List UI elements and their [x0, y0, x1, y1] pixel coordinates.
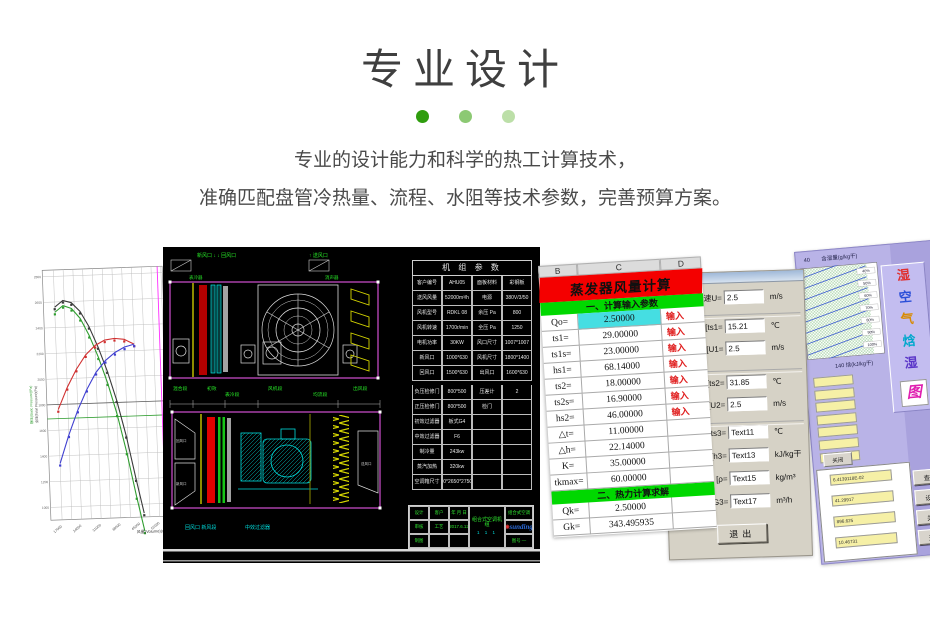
- param-value: 800*500: [442, 400, 472, 415]
- section-divider-dots: [0, 108, 930, 126]
- psy-input[interactable]: [815, 399, 856, 412]
- param-label: 检门: [472, 400, 502, 415]
- param-value: 380V/3/50: [502, 291, 532, 306]
- param-value: 1800*1400: [502, 351, 532, 366]
- svg-text:70%: 70%: [865, 306, 874, 311]
- field-input[interactable]: Text15: [729, 470, 769, 485]
- seg-label-2: 初效: [207, 385, 217, 392]
- description-line-2: 准确匹配盘管冷热量、流程、水阻等技术参数，完善预算方案。: [199, 188, 731, 209]
- field-input[interactable]: Text11: [728, 424, 768, 439]
- param-value: 30KW: [442, 336, 472, 351]
- seg-label-4: 风机段: [268, 385, 283, 392]
- svg-text:50%: 50%: [863, 281, 872, 286]
- cell-note: [670, 466, 714, 485]
- param-label: 送风风量: [412, 291, 442, 306]
- param-label: 客户编号: [412, 276, 442, 291]
- field-unit: m/s: [770, 291, 783, 300]
- unit-parameters-table: 机 组 参 数 客户编号 AHU05 面板材料 彩钢板 送风风量 52000m³…: [412, 260, 532, 490]
- field-unit: m/s: [773, 398, 786, 407]
- cad-bottom-label-1: 回风口 新风段: [185, 524, 216, 531]
- unit-parameters-title: 机 组 参 数: [412, 260, 532, 276]
- param-value: 2: [502, 385, 532, 400]
- company-logo: ◉sunding: [505, 520, 533, 534]
- param-value: 彩钢板: [502, 276, 532, 291]
- table-row: 负压检修门 800*500 压差计 2: [412, 385, 532, 400]
- exit-button[interactable]: 退出: [918, 527, 930, 545]
- svg-text:24000: 24000: [72, 524, 82, 533]
- param-value: 1500*630: [442, 366, 472, 381]
- param-label: 面板材料: [472, 276, 502, 291]
- svg-text:2800: 2800: [34, 275, 41, 279]
- svg-text:40%: 40%: [862, 269, 871, 274]
- title-block-row: 制图: [409, 534, 469, 548]
- field-input[interactable]: Text17: [730, 493, 770, 508]
- svg-text:2200: 2200: [36, 352, 43, 356]
- query-button[interactable]: 查询: [912, 467, 930, 485]
- param-label: 初效过滤器: [412, 415, 442, 430]
- table-row: 正压检修门 800*500 检门: [412, 400, 532, 415]
- psy-result-field: 41.29917: [831, 490, 894, 506]
- about-button[interactable]: 关于: [916, 507, 930, 525]
- svg-text:90%: 90%: [867, 330, 876, 335]
- field-input[interactable]: 2.5: [724, 289, 764, 304]
- psy-input[interactable]: [819, 437, 860, 450]
- psy-input[interactable]: [817, 425, 858, 438]
- table-row: 中效过滤器 F6: [412, 430, 532, 445]
- param-value: 1250: [502, 321, 532, 336]
- psy-input[interactable]: [816, 412, 857, 425]
- psychrometric-tool-window: 40 含湿量(g/kg干) 40%50%60%70%80%90%100% 140…: [794, 240, 930, 565]
- param-label: [472, 415, 502, 430]
- side-label-supply: 送风口: [361, 461, 372, 466]
- param-value: 板式G4: [442, 415, 472, 430]
- exit-button[interactable]: 退出: [717, 523, 768, 544]
- param-label: 蒸汽加热: [412, 460, 442, 475]
- svg-text:60%: 60%: [864, 293, 873, 298]
- param-value: F6: [442, 430, 472, 445]
- psy-vertical-title: 湿空气焓湿 图: [881, 262, 930, 413]
- param-label: 回风口: [412, 366, 442, 381]
- title-block-name: 组合式空调机组 1 1 1: [469, 506, 505, 548]
- param-value: RDKL 08: [442, 306, 472, 321]
- psy-bottom-axis-label: 140 焓(kJ/kg干): [835, 359, 874, 370]
- field-input[interactable]: 2.5: [727, 396, 767, 411]
- side-label-return: 回风口: [176, 439, 187, 443]
- param-label: [472, 475, 502, 490]
- psy-result-field: 10.46731: [835, 532, 898, 548]
- cad-top-left-label: 新风口 ↓ ↓ 回风口: [197, 252, 236, 259]
- psy-title-chars: 湿空气焓湿: [882, 263, 930, 376]
- table-row: 风机转速 1700r/min 全压 Pa 1250: [412, 321, 532, 336]
- param-value: 6500*2650*2750(H): [442, 475, 472, 490]
- table-row: 制冷量 243kw: [412, 445, 532, 460]
- param-label: 电机功率: [412, 336, 442, 351]
- seg-label-3: 表冷段: [225, 391, 240, 398]
- table-row: 风机型号 RDKL 08 余压 Pa 800: [412, 306, 532, 321]
- cell-value[interactable]: 343.495935: [590, 513, 673, 534]
- field-input[interactable]: 15.21: [725, 318, 765, 333]
- field-unit: ℃: [772, 376, 781, 385]
- param-value: [502, 415, 532, 430]
- param-label: 全压 Pa: [472, 321, 502, 336]
- psychrometric-chart: 40%50%60%70%80%90%100%: [799, 262, 885, 360]
- param-value: [502, 445, 532, 460]
- param-label: 风机型号: [412, 306, 442, 321]
- table-row: 蒸汽加热 320kw: [412, 460, 532, 475]
- section-description: 专业的设计能力和科学的热工计算技术， 准确匹配盘管冷热量、流程、水阻等技术参数，…: [0, 142, 930, 218]
- param-label: 中效过滤器: [412, 430, 442, 445]
- psy-result-field: 896.625: [833, 511, 896, 527]
- param-value: 1000*630: [442, 351, 472, 366]
- evaporator-calc-spreadsheet: B C D 蒸发器风量计算 一、计算输入参数 Qo= 2.50000 输入 ts…: [538, 256, 717, 537]
- title-block-company: 组合式空调 ◉sunding 图号 —: [505, 506, 533, 548]
- fan-chart-plot: 1700024000310003800045000520001000120014…: [24, 260, 176, 551]
- svg-text:31000: 31000: [92, 523, 102, 532]
- description-line-1: 专业的设计能力和科学的热工计算技术，: [294, 150, 636, 171]
- table-row: 新风口 1000*630 风机尺寸 1800*1400: [412, 351, 532, 366]
- revision-marks: 1 1 1: [477, 531, 497, 536]
- field-unit: kJ/kg干: [775, 448, 802, 460]
- param-label: 出风口: [472, 366, 502, 381]
- param-label: 风机转速: [412, 321, 442, 336]
- cad-top-right-label: ↑ 送风口: [309, 252, 328, 259]
- svg-text:2000: 2000: [37, 378, 44, 382]
- table-row: 初效过滤器 板式G4: [412, 415, 532, 430]
- param-value: 52000m³/h: [442, 291, 472, 306]
- title-block-grid: 设计 客户 年 月 日 审核 工艺 2017.6.12 制图: [409, 506, 469, 548]
- unit-parameters-rows: 客户编号 AHU05 面板材料 彩钢板 送风风量 52000m³/h 电源 38…: [412, 276, 532, 490]
- seg-label-1: 混合段: [173, 385, 188, 392]
- sheet-input-rows: Qo= 2.50000 输入 ts1= 29.00000 输入 ts1s= 23…: [541, 306, 714, 491]
- psy-results-panel: 6.4139118E-0241.29917896.62510.46731: [816, 462, 918, 563]
- psy-result-field: 6.4139118E-02: [830, 469, 893, 485]
- param-label: 新风口: [412, 351, 442, 366]
- param-label: 负压检修门: [412, 385, 442, 400]
- param-label: 电源: [472, 291, 502, 306]
- side-label-fresh: 新风口: [176, 481, 187, 486]
- param-value: 1600*630: [502, 366, 532, 381]
- cad-silencer-label: 消声器: [325, 274, 339, 281]
- title-block-row: 审核 工艺 2017.6.12: [409, 520, 469, 534]
- param-value: 800: [502, 306, 532, 321]
- field-input[interactable]: Text13: [729, 447, 769, 462]
- settings-button[interactable]: 设置: [914, 487, 930, 505]
- field-unit: ℃: [771, 320, 780, 329]
- cell-label[interactable]: Gk=: [553, 518, 591, 536]
- dot-icon: [416, 110, 429, 123]
- param-label: [472, 430, 502, 445]
- param-value: 1700r/min: [442, 321, 472, 336]
- fan-performance-chart: 1700024000310003800045000520001000120014…: [24, 260, 176, 551]
- param-label: [472, 460, 502, 475]
- param-value: [502, 460, 532, 475]
- field-input[interactable]: 31.85: [726, 374, 766, 389]
- psy-top-axis-label: 40 含湿量(g/kg干): [803, 252, 857, 265]
- psy-logo-glyph-icon: 图: [900, 379, 929, 407]
- cell-note: [673, 511, 717, 530]
- svg-text:38000: 38000: [111, 522, 121, 531]
- param-value: [502, 400, 532, 415]
- field-unit: m³/h: [776, 495, 792, 504]
- psy-input[interactable]: [813, 374, 854, 387]
- svg-text:1000: 1000: [42, 506, 49, 510]
- seg-label-6: 出风段: [353, 385, 368, 392]
- param-value: 320kw: [442, 460, 472, 475]
- svg-text:80%: 80%: [866, 318, 875, 323]
- cad-coil-label: 表冷器: [189, 274, 203, 281]
- param-value: 243kw: [442, 445, 472, 460]
- param-label: 制冷量: [412, 445, 442, 460]
- param-label: 空调箱尺寸: [412, 475, 442, 490]
- field-unit: ℃: [774, 426, 783, 435]
- dot-icon: [502, 110, 515, 123]
- table-row: 客户编号 AHU05 面板材料 彩钢板: [412, 276, 532, 291]
- param-label: 风口尺寸: [472, 336, 502, 351]
- cad-bottom-label-2: 中效过滤器: [245, 524, 270, 531]
- svg-text:1600: 1600: [39, 429, 46, 433]
- param-label: 风机尺寸: [472, 351, 502, 366]
- svg-text:2400: 2400: [36, 326, 43, 330]
- table-row: 电机功率 30KW 风口尺寸 1007*1007: [412, 336, 532, 351]
- param-label: [472, 445, 502, 460]
- svg-text:1200: 1200: [41, 480, 48, 484]
- drawing-title-block: 设计 客户 年 月 日 审核 工艺 2017.6.12 制图 组合式空调机组: [408, 505, 534, 549]
- param-value: AHU05: [442, 276, 472, 291]
- table-row: 送风风量 52000m³/h 电源 380V/3/50: [412, 291, 532, 306]
- param-value: 800*500: [442, 385, 472, 400]
- table-row: 空调箱尺寸 6500*2650*2750(H): [412, 475, 532, 490]
- cell-label[interactable]: tkmax=: [550, 473, 588, 491]
- table-row: 回风口 1500*630 出风口 1600*630: [412, 366, 532, 381]
- title-block-row: 设计 客户 年 月 日: [409, 506, 469, 520]
- svg-text:17000: 17000: [53, 525, 63, 534]
- psy-input-fields: [813, 374, 861, 465]
- cad-drawing-panel: 新风口 ↓ ↓ 回风口 ↑ 送风口 表冷器 消声器: [163, 247, 540, 563]
- field-unit: kg/m³: [775, 472, 795, 482]
- param-value: [502, 430, 532, 445]
- field-unit: m/s: [771, 342, 784, 351]
- page-title: 专业设计: [0, 36, 930, 97]
- psy-input[interactable]: [814, 387, 855, 400]
- svg-text:1400: 1400: [40, 454, 47, 458]
- param-label: 压差计: [472, 385, 502, 400]
- param-label: 正压检修门: [412, 400, 442, 415]
- svg-text:2600: 2600: [35, 301, 42, 305]
- svg-text:1800: 1800: [38, 403, 45, 407]
- param-value: 1007*1007: [502, 336, 532, 351]
- param-label: 余压 Pa: [472, 306, 502, 321]
- close-button[interactable]: 关闭: [823, 452, 853, 467]
- seg-label-5: 均流段: [313, 391, 328, 398]
- field-input[interactable]: 2.5: [725, 340, 765, 355]
- param-value: [502, 475, 532, 490]
- dot-icon: [459, 110, 472, 123]
